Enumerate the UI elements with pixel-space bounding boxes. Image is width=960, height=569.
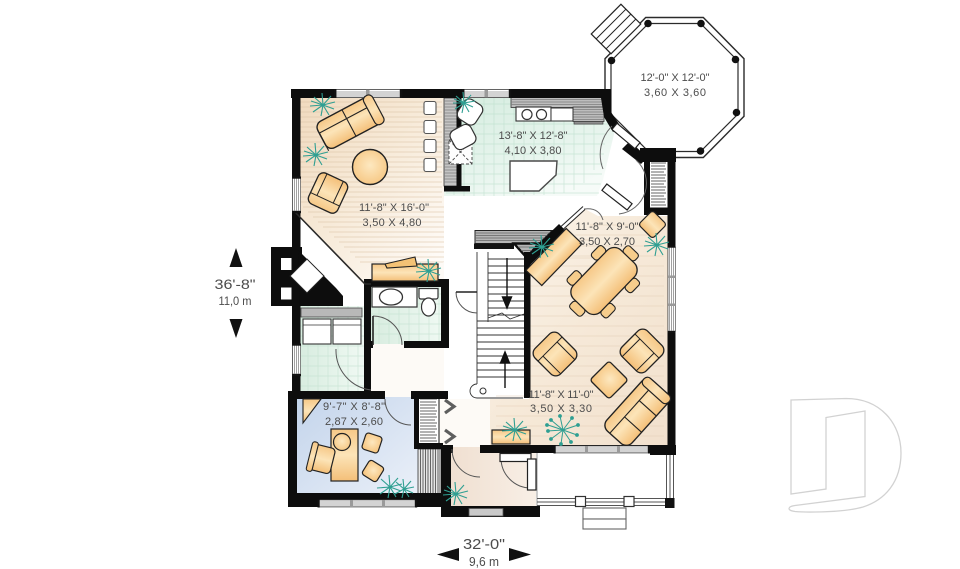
svg-text:3,50 X 4,80: 3,50 X 4,80 <box>363 217 422 229</box>
svg-text:9'-7" X 8'-8": 9'-7" X 8'-8" <box>323 401 385 413</box>
svg-text:11'-8" X 11'-0": 11'-8" X 11'-0" <box>529 389 594 401</box>
svg-text:3,60 X 3,60: 3,60 X 3,60 <box>644 87 706 99</box>
svg-text:13'-8" X 12'-8": 13'-8" X 12'-8" <box>499 130 568 142</box>
svg-text:32'-0": 32'-0" <box>463 536 505 553</box>
svg-text:4,10 X 3,80: 4,10 X 3,80 <box>505 145 562 157</box>
svg-text:36'-8": 36'-8" <box>215 277 256 292</box>
svg-text:3,50 X 3,30: 3,50 X 3,30 <box>530 403 592 415</box>
svg-text:2,87 X 2,60: 2,87 X 2,60 <box>325 416 383 428</box>
svg-text:11,0 m: 11,0 m <box>219 294 252 308</box>
svg-text:11'-8" X 9'-0": 11'-8" X 9'-0" <box>576 221 639 233</box>
svg-text:3,50 X 2,70: 3,50 X 2,70 <box>579 236 635 248</box>
svg-text:12'-0" X 12'-0": 12'-0" X 12'-0" <box>641 72 710 84</box>
svg-text:11'-8" X 16'-0": 11'-8" X 16'-0" <box>359 202 429 214</box>
svg-text:9,6 m: 9,6 m <box>469 554 499 569</box>
